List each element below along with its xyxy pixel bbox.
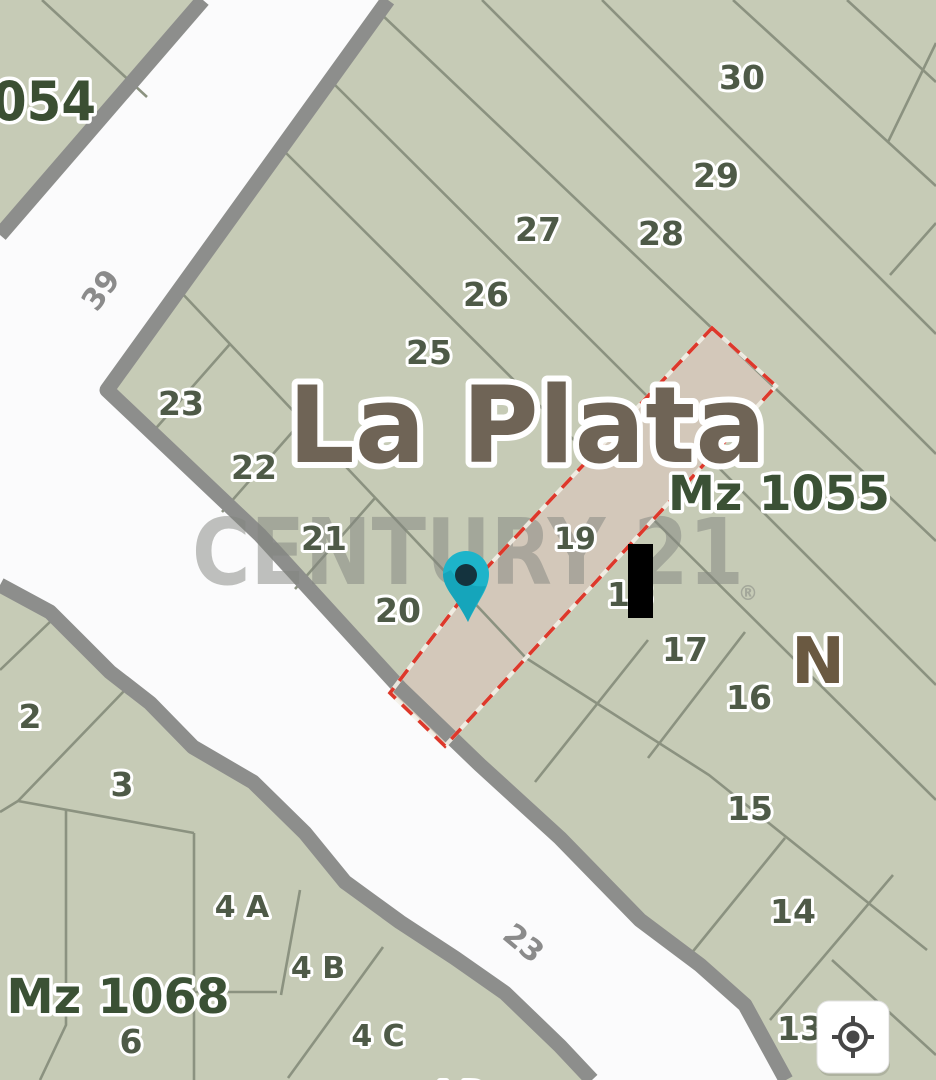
street-39-label: 39 xyxy=(75,263,128,317)
north-indicator: N xyxy=(791,625,845,699)
lot-label-4c: 4 C xyxy=(351,1019,404,1054)
lot-label-4a: 4 A xyxy=(215,890,270,925)
lot-label-19: 19 xyxy=(554,522,596,557)
block-1055-label: Mz 1055 xyxy=(668,466,890,522)
block-1054-label: 054 xyxy=(0,70,96,133)
lot-label-22: 22 xyxy=(231,448,277,487)
lot-label-16: 16 xyxy=(726,678,772,717)
lot-label-20: 20 xyxy=(375,591,421,630)
locate-button[interactable] xyxy=(817,1001,890,1076)
lot-label-23: 23 xyxy=(158,384,204,423)
lot-label-26: 26 xyxy=(463,275,509,314)
lot-label-30: 30 xyxy=(719,58,765,97)
lot-label-14: 14 xyxy=(770,892,816,931)
lot-label-28: 28 xyxy=(638,214,684,253)
lot-label-4d: 4 D xyxy=(430,1076,486,1080)
lot-label-2: 2 xyxy=(19,697,42,736)
lot-label-25: 25 xyxy=(406,333,452,372)
street-23-label: 23 xyxy=(496,917,550,971)
registered-trademark-icon: ® xyxy=(738,581,758,605)
lot-label-6: 6 xyxy=(120,1022,143,1061)
lot-label-27: 27 xyxy=(515,210,561,249)
pin-center-dot xyxy=(455,564,477,586)
lot-label-4b: 4 B xyxy=(291,951,345,986)
lot-label-15: 15 xyxy=(727,789,773,828)
map-screenshot: CENTURY 21 ® 39 23 054 La Plata Mz 1055 … xyxy=(0,0,936,1080)
lot-label-3: 3 xyxy=(111,765,134,804)
block-1068-label: Mz 1068 xyxy=(7,969,230,1025)
lot-label-13: 13 xyxy=(777,1009,823,1048)
map-canvas[interactable]: CENTURY 21 ® 39 23 054 La Plata Mz 1055 … xyxy=(0,0,936,1080)
lot-label-17: 17 xyxy=(662,630,708,669)
lot-label-21: 21 xyxy=(301,519,347,558)
lot-label-29: 29 xyxy=(693,156,739,195)
redaction-bar xyxy=(628,544,653,618)
